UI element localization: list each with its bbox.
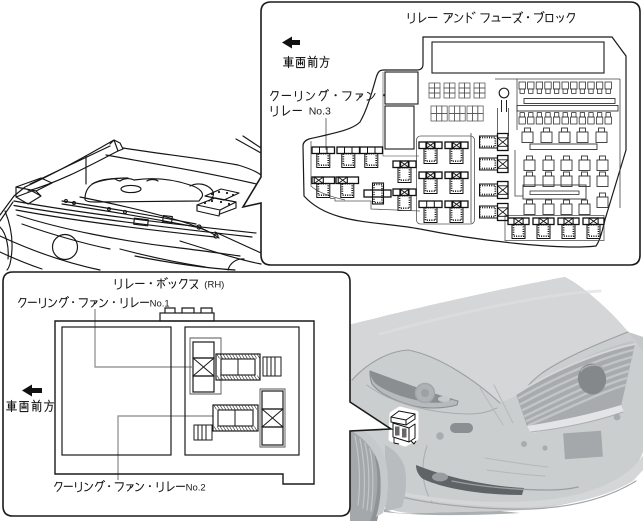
svg-text:No.2: No.2 xyxy=(186,482,206,493)
svg-text:No.3: No.3 xyxy=(309,106,331,118)
svg-text:(RH): (RH) xyxy=(204,280,224,291)
